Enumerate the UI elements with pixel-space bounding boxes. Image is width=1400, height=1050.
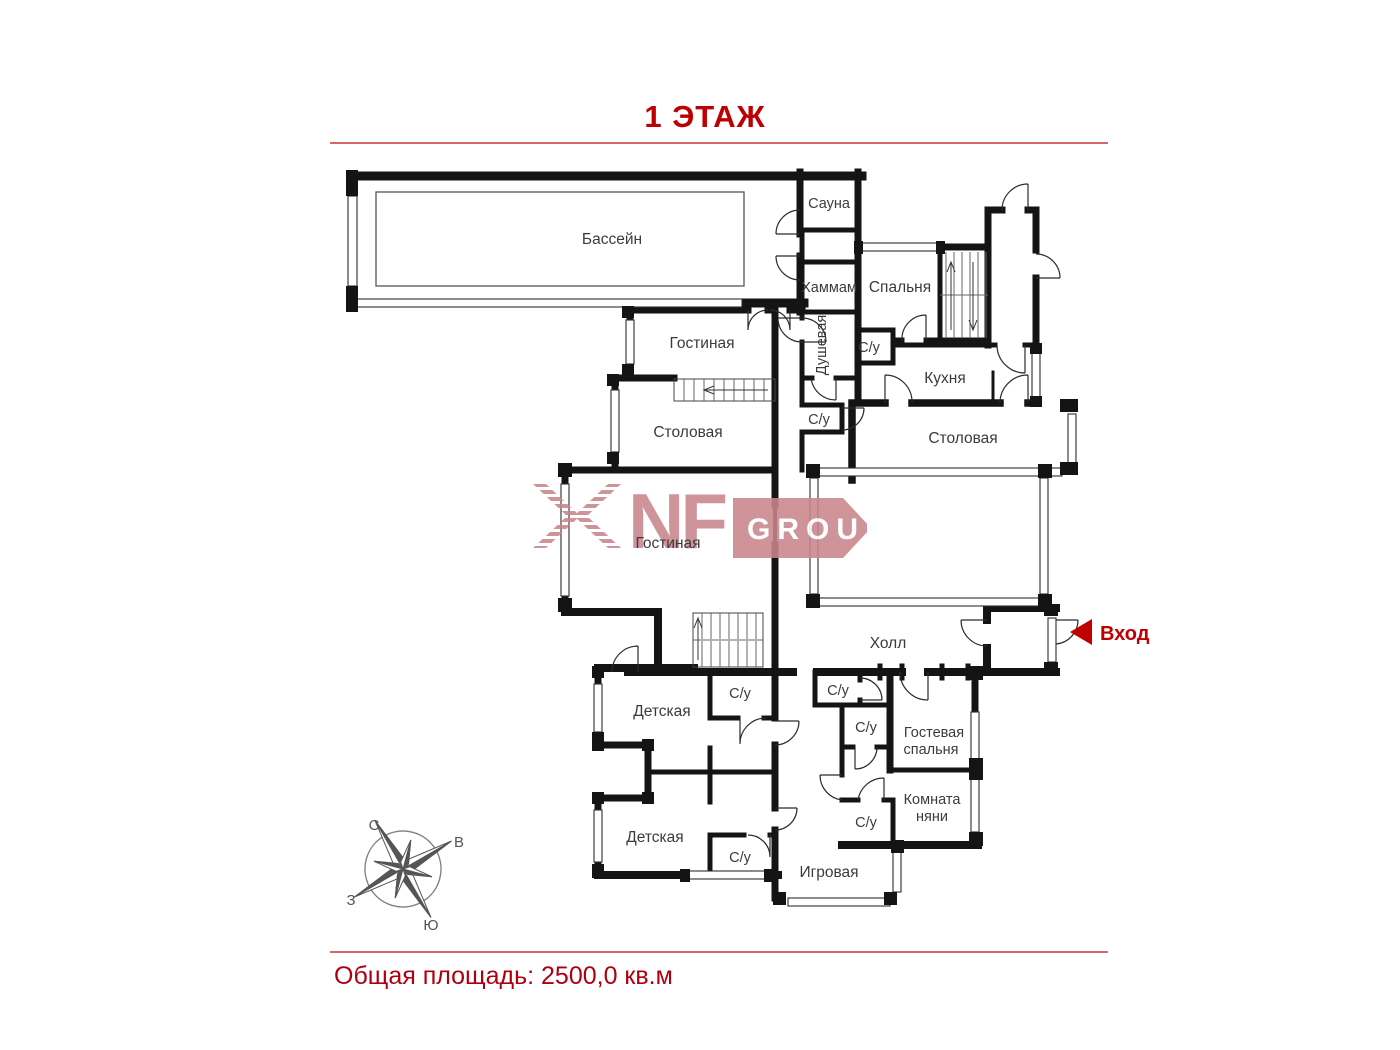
logo-group-text: GROUP (747, 513, 892, 546)
room-label-wc-guest: С/у (855, 720, 878, 736)
room-label-wc-nursery-1: С/у (729, 686, 752, 702)
room-label-wc-bedroom: С/у (858, 340, 881, 356)
room-label-hall: Холл (870, 635, 907, 652)
floor-plan-page: 1 ЭТАЖ (0, 0, 1400, 1050)
room-label-nursery-2: Детская (626, 829, 683, 846)
entrance-label: Вход (1100, 623, 1150, 645)
floor-plan-drawing: 1 ЭТАЖ (0, 0, 1400, 1050)
logo-chevron-right-icon (574, 484, 621, 548)
room-label-hammam: Хаммам (801, 280, 857, 296)
room-label-playroom: Игровая (799, 864, 858, 881)
room-label-guest-bedroom-line2: спальня (903, 742, 958, 758)
total-area-label: Общая площадь: 2500,0 кв.м (334, 962, 673, 990)
compass-east-label: В (454, 834, 464, 851)
room-label-dining-right: Столовая (928, 430, 997, 447)
stairs-dining (674, 379, 775, 401)
room-label-wc-hall: С/у (827, 683, 850, 699)
page-title: 1 ЭТАЖ (644, 99, 765, 134)
room-label-shower: Душевая (814, 315, 830, 376)
room-label-dining-left: Столовая (653, 424, 722, 441)
room-label-bedroom: Спальня (869, 279, 931, 296)
swimming-pool-basin (376, 192, 744, 286)
compass-star-icon (327, 793, 480, 946)
room-label-guest-bedroom-line1: Гостевая (904, 725, 964, 741)
room-label-kitchen: Кухня (924, 370, 965, 387)
entrance-marker: Вход (1070, 619, 1150, 645)
stairs-bedroom (940, 252, 988, 338)
compass-west-label: З (346, 892, 355, 909)
room-label-nanny-room-line1: Комната (904, 792, 962, 808)
room-label-nursery-1: Детская (633, 703, 690, 720)
room-label-pool: Бассейн (582, 231, 642, 248)
nf-group-logo: NF GROUP (533, 477, 892, 565)
logo-chevron-left-icon (533, 484, 580, 548)
room-label-living-center: Гостиная (635, 535, 700, 552)
room-label-nanny-room-line2: няни (916, 809, 948, 825)
compass-south-label: Ю (423, 917, 438, 934)
room-label-wc-nursery-2: С/у (729, 850, 752, 866)
entrance-arrow-icon (1070, 619, 1092, 645)
room-label-living-upper: Гостиная (669, 335, 734, 352)
room-label-wc-nanny: С/у (855, 815, 878, 831)
compass-north-label: С (369, 817, 380, 834)
room-label-sauna: Сауна (808, 196, 851, 212)
room-label-wc-shower: С/у (808, 412, 831, 428)
compass-rose: С В З Ю (327, 793, 480, 946)
stairs-hall (693, 613, 763, 667)
